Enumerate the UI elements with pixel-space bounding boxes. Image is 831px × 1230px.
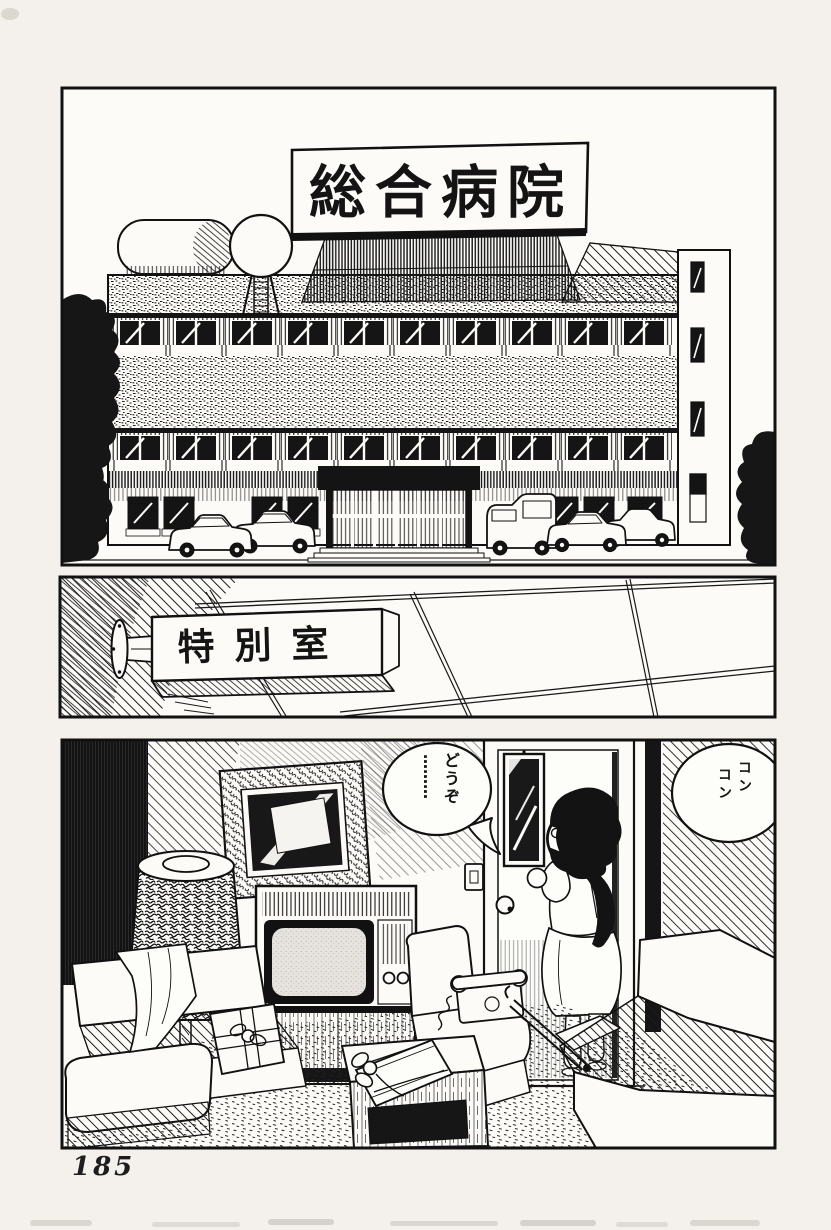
tv-knob: [384, 973, 395, 984]
tv-top-grill: [262, 892, 410, 916]
speech-bubble-douzo-text: どうぞ ………: [410, 752, 462, 830]
tv-set: [256, 886, 416, 1012]
tv-knob: [398, 973, 409, 984]
window-row-2: [112, 433, 672, 471]
nurse-knocking-fist: [528, 869, 547, 888]
speech-line: どうぞ: [438, 752, 462, 830]
table-shelf-opening: [368, 1100, 468, 1144]
page-number: 185: [72, 1152, 135, 1182]
stair-tower: [678, 250, 730, 545]
door-knob: [497, 897, 514, 914]
manga-page: 総合病院 特別室 どうぞ ……… コン コン 185: [0, 0, 831, 1230]
entrance-steps: [308, 548, 490, 562]
speech-ellipsis: ………: [420, 752, 438, 830]
picture-frame: [220, 761, 371, 899]
nurse-skirt: [542, 928, 621, 1016]
hospital-entrance: [308, 466, 490, 562]
sfx-line: コン: [714, 760, 734, 822]
nameplate-end-face: [382, 609, 399, 675]
billboard-support: [302, 232, 580, 302]
wrapped-package: [210, 1004, 284, 1074]
window-row-1: [112, 318, 672, 356]
sfx-bubble-knock-text: コン コン: [706, 760, 754, 822]
rooftop-tank: [118, 220, 234, 275]
mid-brick-band: [108, 356, 678, 433]
door-mirror: [504, 750, 544, 866]
sfx-line: コン: [734, 760, 754, 822]
hospital-sign-text: 総合病院: [296, 156, 586, 230]
room-nameplate-text: 特別室: [167, 622, 358, 671]
light-switch: [465, 864, 483, 890]
